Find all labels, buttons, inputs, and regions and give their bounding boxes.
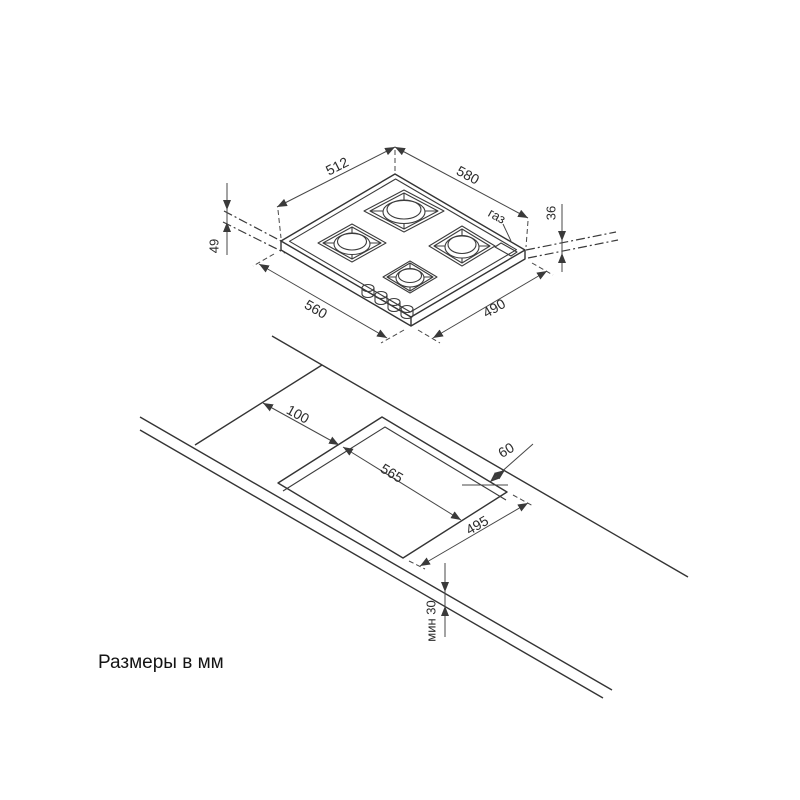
dimension-label: 49 [207, 239, 222, 253]
burner-left [318, 224, 386, 262]
extension-line [278, 210, 281, 238]
dimension-min-30: мин 30 [424, 563, 446, 642]
worktop-lower-line-right [528, 240, 618, 258]
dimension-label: 36 [544, 206, 559, 220]
dimension-label: 490 [480, 295, 508, 321]
dimension-565: 565 [343, 447, 461, 520]
extension-line [418, 330, 440, 343]
burner-cap-inner [448, 236, 476, 254]
worktop-cutout-view: 100 565 495 60 мин 30 [140, 336, 688, 698]
burner-right [429, 226, 495, 266]
burner-cap-inner [338, 233, 367, 250]
worktop-surface-line-left [224, 211, 281, 241]
burner-cap-inner [387, 200, 421, 219]
dimension-line [343, 447, 461, 520]
installation-drawing-page: газ 512 580 560 490 [0, 0, 800, 800]
dimension-490: 490 [418, 263, 553, 343]
hob-iso-view: газ 512 580 560 490 [207, 147, 619, 343]
dimension-100: 100 [263, 401, 339, 445]
gas-connection [495, 243, 517, 256]
cutout-opening [278, 417, 507, 558]
units-note: Размеры в мм [98, 652, 224, 673]
extension-line [513, 495, 533, 506]
dimension-label: 565 [378, 460, 406, 486]
dimension-label: 495 [463, 512, 491, 538]
dimension-label: 560 [302, 296, 330, 322]
hob-bottom-line-left [223, 222, 285, 253]
dimension-label: 100 [284, 401, 312, 426]
extension-line [526, 221, 528, 247]
cutout-inner-wall [283, 427, 506, 500]
installation-diagram: газ 512 580 560 490 [0, 0, 800, 800]
dimension-495: 495 [409, 495, 533, 569]
burner-front [383, 261, 437, 293]
worktop-front-edge-top [140, 417, 612, 690]
gas-label: газ [486, 205, 509, 227]
worktop-left-edge [195, 365, 322, 445]
dimension-label: 580 [454, 162, 482, 187]
worktop-surface-line-right [526, 232, 616, 250]
knob [362, 285, 374, 298]
worktop-back-edge [272, 336, 688, 577]
dimension-label: 512 [323, 153, 351, 178]
dimension-60: 60 [462, 439, 533, 485]
extension-line [253, 254, 274, 266]
dimension-line [277, 147, 395, 207]
dimension-label: 60 [495, 439, 517, 461]
dimension-label: мин 30 [424, 600, 439, 641]
dimension-36: 36 [544, 204, 563, 272]
arrow-up-right [493, 470, 505, 479]
dimension-line [395, 147, 528, 218]
burner-cap-inner [399, 269, 422, 283]
dimension-512: 512 [277, 147, 395, 238]
dimension-49: 49 [207, 183, 228, 255]
